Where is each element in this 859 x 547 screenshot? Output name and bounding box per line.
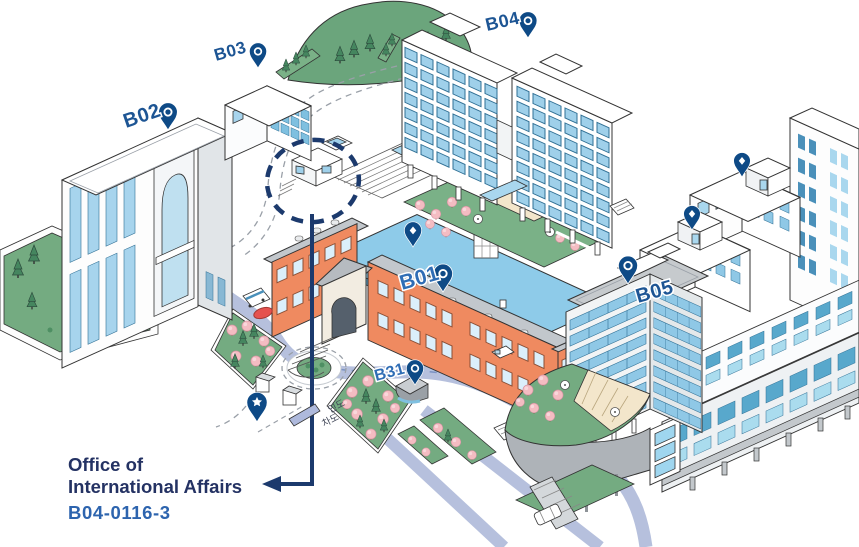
campus-map: B02 B03 B04 B01 B05 B31 인도 차도 Office of …: [0, 0, 859, 547]
plaza-star-pin-icon[interactable]: [247, 392, 267, 422]
callout-office-line1: Office of: [68, 454, 144, 475]
callout-office-line2: International Affairs: [68, 476, 242, 497]
callout-arrowhead-icon: [262, 476, 281, 492]
label-b04[interactable]: B04: [483, 8, 521, 35]
label-b02[interactable]: B02: [120, 99, 163, 132]
kiosk-1: [256, 373, 275, 392]
road-type-marker: 인도 차도: [258, 398, 347, 432]
b03-pin-icon[interactable]: [249, 43, 266, 68]
label-b03[interactable]: B03: [212, 38, 249, 65]
building-b03: [225, 86, 311, 161]
campus-map-svg: B02 B03 B04 B01 B05 B31 인도 차도 Office of …: [0, 0, 859, 547]
b04-stairs: [610, 199, 634, 215]
kiosk-2: [283, 386, 302, 405]
b04-pin-icon[interactable]: [519, 12, 537, 38]
callout-room-code: B04-0116-3: [68, 502, 171, 523]
callout-text: Office of International Affairs B04-0116…: [68, 454, 242, 523]
label-b31[interactable]: B31: [373, 360, 407, 384]
